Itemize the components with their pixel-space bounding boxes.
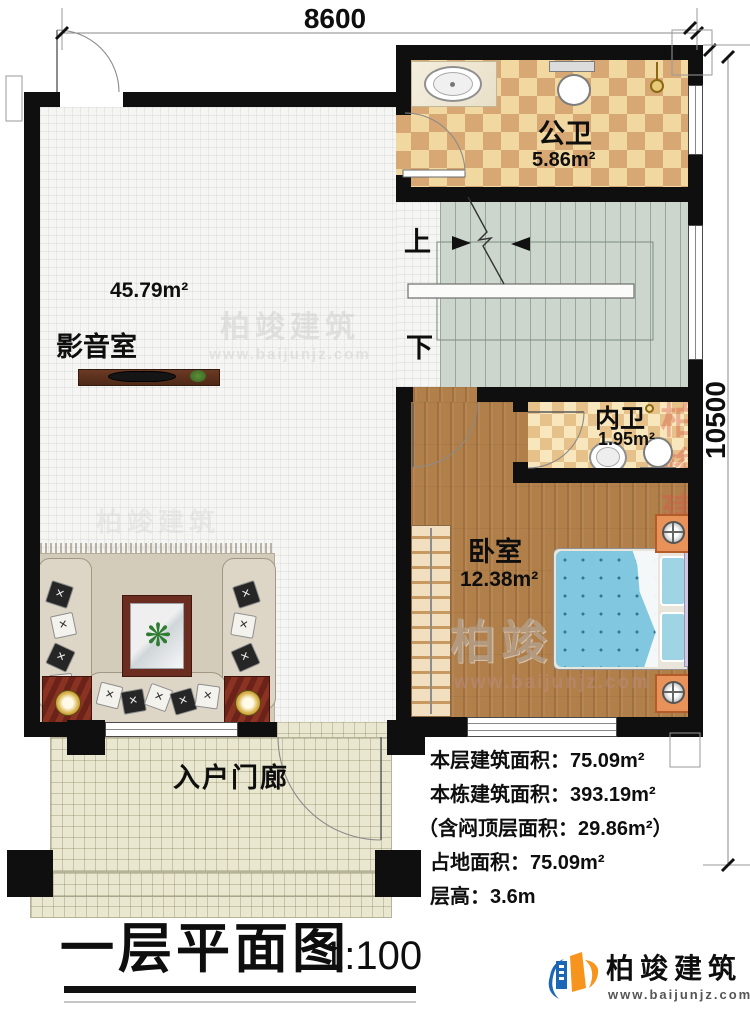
public-bath-door-threshold <box>396 115 411 175</box>
brand-name: 柏竣建筑 <box>606 954 742 985</box>
title-underline-thick <box>64 986 416 993</box>
dim-top-tick-left <box>56 27 68 39</box>
nightstand-bottom <box>655 674 692 713</box>
rug-fringe <box>35 543 275 553</box>
wall-bedroom-top-b <box>477 387 703 402</box>
dimension-top-value: 8600 <box>300 4 370 35</box>
floor-plan-canvas: 柏竣建筑 www.baijunjz.com 柏竣建筑 www.baijunjz.… <box>0 0 750 1014</box>
logo-building-window <box>559 977 564 980</box>
dim-tick-topright-a <box>684 22 696 34</box>
sofa-cushion: ✕ <box>230 612 257 639</box>
wall-media-top-a <box>24 92 60 107</box>
bed-pillow <box>660 556 686 606</box>
logo-building-orange <box>570 952 586 992</box>
exterior-pier-left <box>6 76 22 121</box>
shower-drain <box>650 79 664 93</box>
window-stairs-right <box>688 225 703 360</box>
dim-tick-topright-b <box>704 44 716 56</box>
wall-bedroom-bottom-b <box>617 717 703 737</box>
porch-pillar-top-right <box>387 720 425 755</box>
logo-building-window <box>559 971 564 974</box>
dimension-right-value: 10500 <box>701 370 731 470</box>
staircase-floor <box>440 202 688 387</box>
porch-pillar-bottom-left <box>7 850 53 897</box>
sofa-cushion: ✕ <box>195 684 221 710</box>
end-table-left-lamp <box>55 690 81 716</box>
brand-logo-icon <box>540 948 600 1002</box>
inner-sink-basin <box>596 447 620 467</box>
stat-floor-height: 层高：3.6m <box>430 880 536 909</box>
sofa-cushion: ✕ <box>50 612 77 639</box>
toilet-tank <box>549 61 595 72</box>
toilet-bowl <box>557 74 591 106</box>
wall-bath-bottom <box>396 187 703 202</box>
wall-innerbath-bottom <box>513 468 703 483</box>
nightstand-top <box>655 514 692 553</box>
wall-bath-top <box>396 45 703 60</box>
stairs-down-label: 下 <box>406 334 433 364</box>
room-label-media: 影音室 <box>56 333 137 363</box>
logo-building-window <box>559 965 564 968</box>
window-living-front <box>105 722 238 737</box>
dim-top-tick-right <box>691 27 703 39</box>
room-label-bedroom: 卧室 <box>468 538 522 568</box>
tv-screen <box>108 371 176 382</box>
room-label-public-bath: 公卫 <box>538 120 592 150</box>
table-plant: ❋ <box>141 618 175 652</box>
title-underline-thin <box>64 1001 416 1003</box>
bed-pillow <box>660 612 686 662</box>
stairs-up-label: 上 <box>404 228 431 258</box>
stat-footprint-area: 占地面积：75.09m² <box>430 846 605 875</box>
bath-sink-drain <box>450 82 455 87</box>
nightstand-lamp <box>662 521 685 544</box>
stat-building-area: 本栋建筑面积：393.19m² <box>430 778 656 807</box>
stat-floor-area: 本层建筑面积：75.09m² <box>430 744 645 773</box>
wall-left <box>24 92 40 737</box>
room-area-media: 45.79m² <box>110 279 188 302</box>
sofa-cushion: ✕ <box>120 688 147 715</box>
porch-pillar-top-left <box>67 720 105 755</box>
brand-url: www.baijunjz.com <box>608 988 750 1002</box>
wall-bath-left-upper <box>396 60 411 115</box>
cabinet-plant <box>190 370 206 382</box>
dim-corner-box-bottomright <box>670 733 700 767</box>
wall-living-bottom-post <box>238 722 277 737</box>
page-title: 一层平面图 <box>60 920 350 979</box>
wall-living-bottom-a <box>24 722 67 737</box>
room-area-public-bath: 5.86m² <box>532 149 595 171</box>
wall-bedroom-left <box>396 402 411 737</box>
room-area-bedroom: 12.38m² <box>460 568 538 591</box>
window-bedroom-front <box>467 717 617 737</box>
logo-swoosh-orange <box>585 960 598 988</box>
inner-faucet <box>645 404 654 413</box>
porch-step-line <box>30 896 392 897</box>
wall-media-top-b <box>123 92 410 107</box>
entry-threshold <box>277 722 387 737</box>
wall-bedroom-top-a <box>396 387 413 402</box>
dim-right-tick-top <box>722 51 734 63</box>
porch-pillar-bottom-right <box>375 850 421 897</box>
porch-steps <box>30 872 392 918</box>
stat-attic-area: （含闷顶层面积：29.86m²） <box>418 812 673 841</box>
bedroom-door-threshold <box>413 387 477 402</box>
room-label-porch: 入户门廊 <box>173 764 289 794</box>
nightstand-lamp <box>662 681 685 704</box>
dim-right-tick-bottom <box>722 859 734 871</box>
wall-innerbath-left-a <box>513 402 528 412</box>
end-table-right-lamp <box>235 690 261 716</box>
window-bath-right <box>688 85 703 155</box>
brand-logo: 柏竣建筑 www.baijunjz.com <box>540 946 745 1006</box>
porch-floor <box>50 737 392 872</box>
room-area-inner-bath: 1.95m² <box>598 430 655 450</box>
door-media-arc <box>57 30 119 92</box>
wardrobe-rail <box>430 528 432 714</box>
title-scale: 1:100 <box>322 934 422 978</box>
